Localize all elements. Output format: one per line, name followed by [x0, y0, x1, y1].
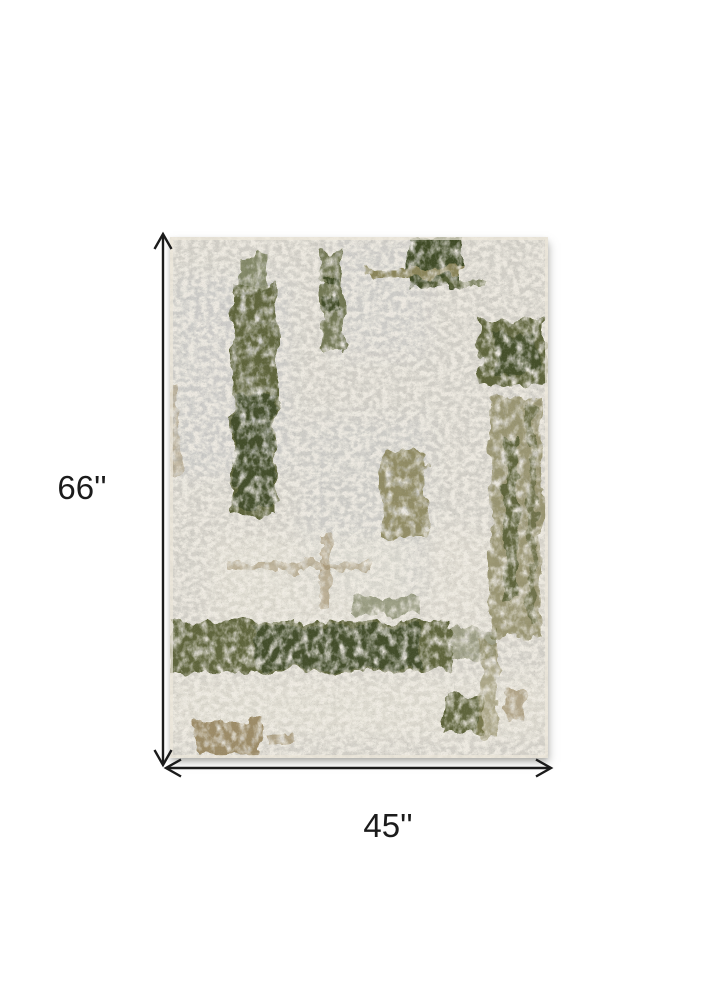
product-dimension-figure: 66'' 45'': [0, 0, 716, 1000]
height-dimension-label: 66'': [36, 471, 128, 504]
rug-art-grain: [170, 237, 548, 758]
rug-image: [170, 237, 548, 758]
arrowhead-right-icon: [536, 760, 551, 777]
width-dimension-label: 45'': [338, 809, 438, 842]
arrowhead-up-icon: [155, 234, 172, 249]
rug-art: [170, 237, 548, 758]
vertical-dimension-arrow: [155, 234, 172, 765]
arrowhead-left-icon: [166, 760, 181, 777]
horizontal-dimension-arrow: [166, 760, 551, 777]
arrowhead-down-icon: [155, 750, 172, 765]
